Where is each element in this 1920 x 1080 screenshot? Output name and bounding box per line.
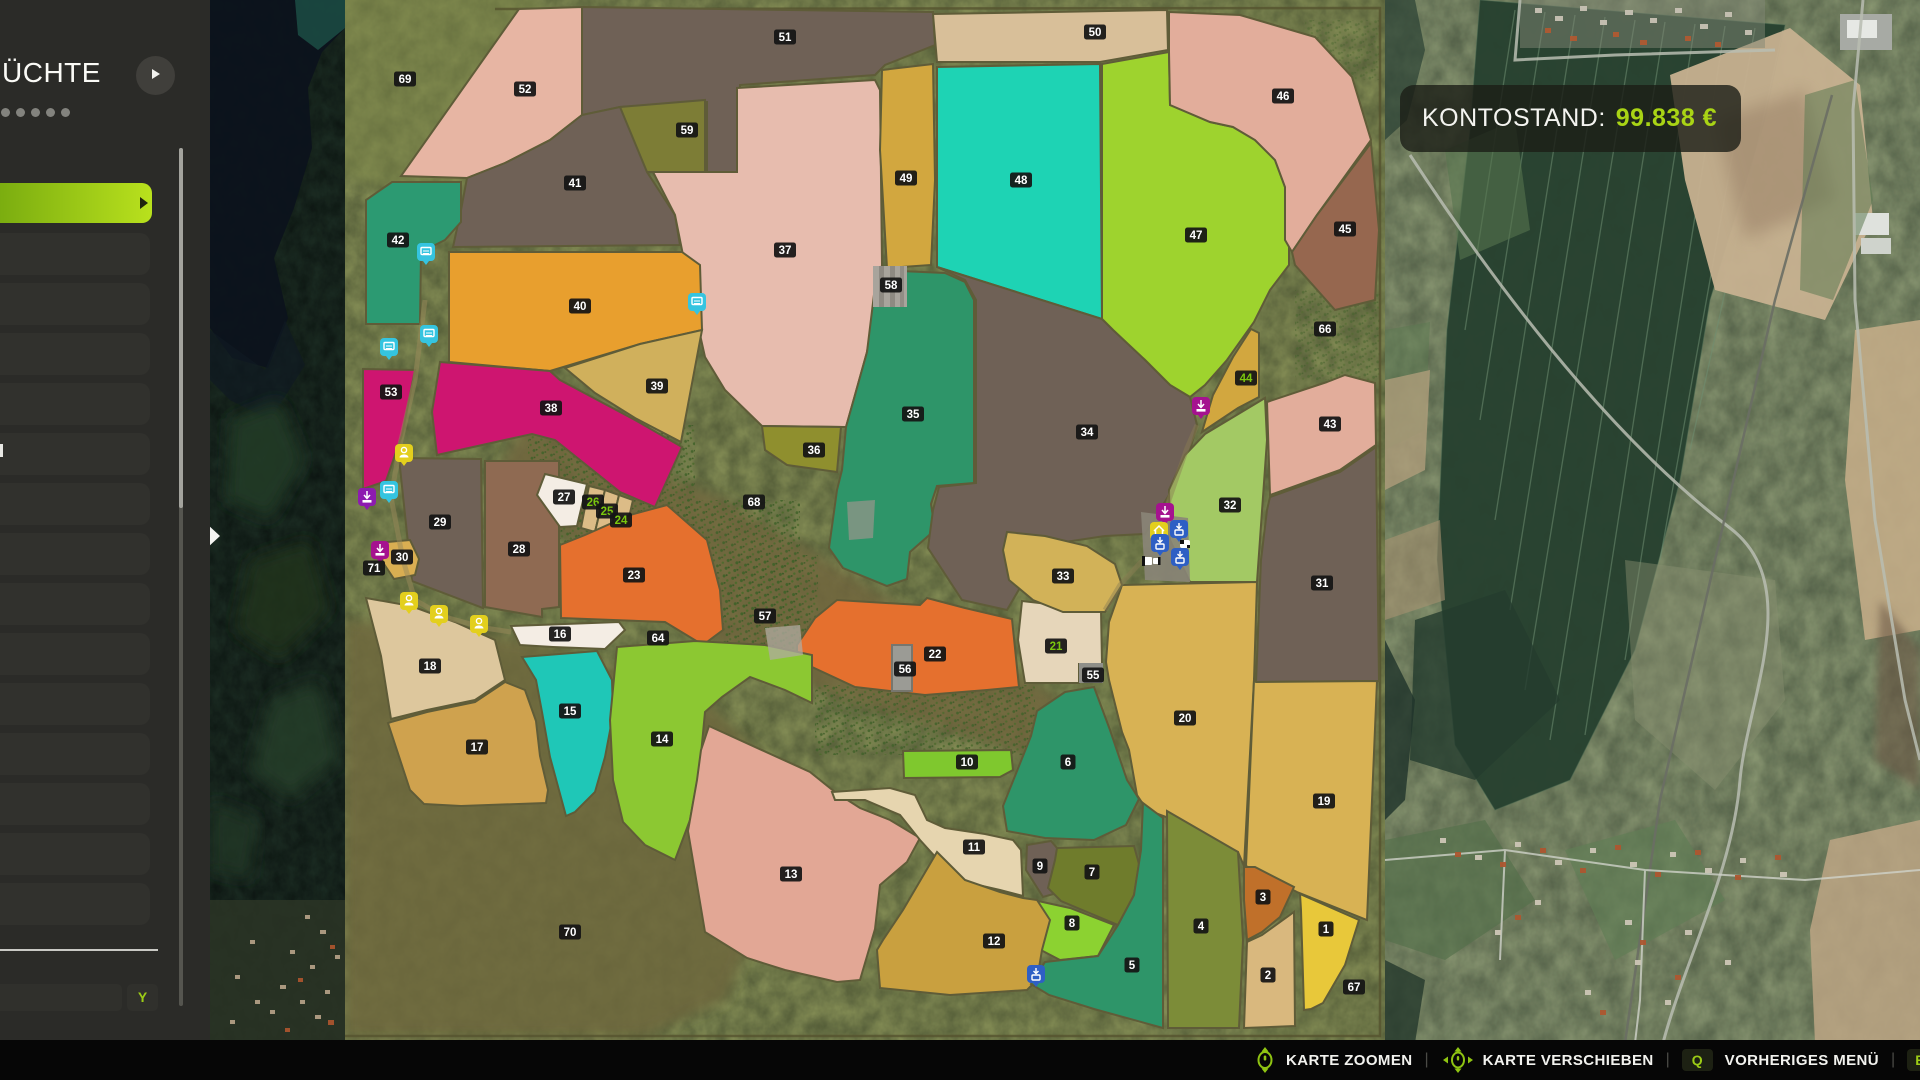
svg-text:59: 59 [681, 125, 694, 137]
svg-text:21: 21 [1050, 641, 1063, 653]
svg-text:39: 39 [651, 381, 664, 393]
svg-text:41: 41 [569, 178, 582, 190]
svg-text:2: 2 [1265, 970, 1271, 982]
svg-text:16: 16 [554, 629, 567, 641]
svg-text:6: 6 [1065, 757, 1071, 769]
svg-text:56: 56 [899, 664, 912, 676]
svg-text:51: 51 [779, 32, 792, 44]
svg-text:40: 40 [574, 301, 587, 313]
svg-text:49: 49 [900, 173, 913, 185]
svg-text:57: 57 [759, 611, 772, 623]
svg-text:20: 20 [1179, 713, 1192, 725]
svg-text:4: 4 [1198, 921, 1205, 933]
svg-text:66: 66 [1319, 324, 1332, 336]
svg-text:9: 9 [1037, 861, 1043, 873]
svg-text:8: 8 [1069, 918, 1076, 930]
svg-text:45: 45 [1339, 224, 1352, 236]
svg-text:52: 52 [519, 84, 532, 96]
svg-text:64: 64 [652, 633, 665, 645]
svg-text:38: 38 [545, 403, 558, 415]
svg-text:42: 42 [392, 235, 405, 247]
svg-text:29: 29 [434, 517, 447, 529]
svg-text:68: 68 [748, 497, 761, 509]
svg-text:31: 31 [1316, 578, 1329, 590]
svg-text:30: 30 [396, 552, 409, 564]
svg-text:13: 13 [785, 869, 798, 881]
svg-text:27: 27 [558, 492, 571, 504]
svg-text:67: 67 [1348, 982, 1361, 994]
svg-text:43: 43 [1324, 419, 1337, 431]
svg-text:70: 70 [564, 927, 577, 939]
svg-text:12: 12 [988, 936, 1001, 948]
svg-text:28: 28 [513, 544, 526, 556]
svg-text:3: 3 [1260, 892, 1266, 904]
svg-text:11: 11 [968, 842, 981, 854]
svg-text:24: 24 [615, 515, 628, 527]
svg-text:36: 36 [808, 445, 821, 457]
svg-text:18: 18 [424, 661, 437, 673]
svg-text:33: 33 [1057, 571, 1070, 583]
svg-text:7: 7 [1089, 867, 1095, 879]
svg-text:55: 55 [1087, 670, 1100, 682]
svg-text:1: 1 [1323, 924, 1330, 936]
svg-text:50: 50 [1089, 27, 1102, 39]
svg-text:35: 35 [907, 409, 920, 421]
svg-text:34: 34 [1081, 427, 1094, 439]
svg-text:69: 69 [399, 74, 412, 86]
svg-text:71: 71 [368, 563, 381, 575]
svg-text:23: 23 [628, 570, 641, 582]
svg-text:10: 10 [961, 757, 974, 769]
svg-text:15: 15 [564, 706, 577, 718]
svg-text:53: 53 [385, 387, 398, 399]
svg-text:17: 17 [471, 742, 484, 754]
svg-text:58: 58 [885, 280, 898, 292]
svg-text:48: 48 [1015, 175, 1028, 187]
svg-text:5: 5 [1129, 960, 1136, 972]
svg-text:19: 19 [1318, 796, 1331, 808]
svg-text:22: 22 [929, 649, 942, 661]
svg-text:14: 14 [656, 734, 669, 746]
svg-text:46: 46 [1277, 91, 1290, 103]
svg-text:44: 44 [1240, 373, 1253, 385]
svg-text:37: 37 [779, 245, 792, 257]
svg-text:47: 47 [1190, 230, 1203, 242]
svg-text:32: 32 [1224, 500, 1237, 512]
